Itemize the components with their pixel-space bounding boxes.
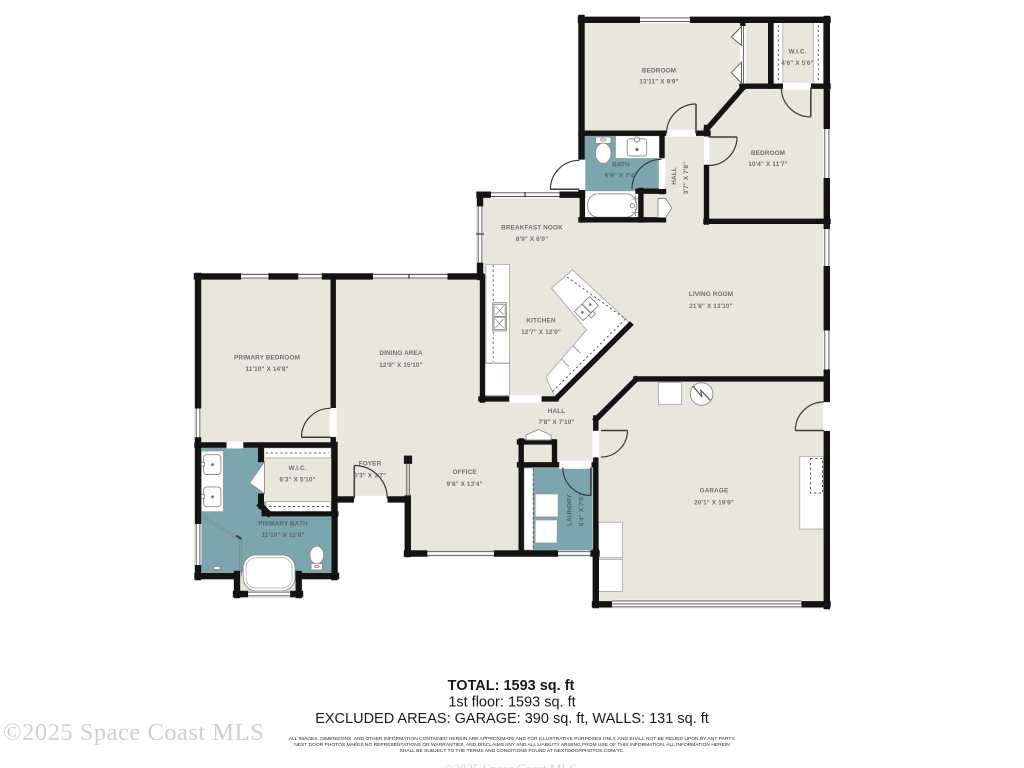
svg-text:11'10" X 14'8": 11'10" X 14'8": [245, 366, 288, 373]
svg-text:BATH: BATH: [612, 162, 630, 169]
svg-text:8'9" X 6'0": 8'9" X 6'0": [516, 236, 548, 243]
svg-text:EXCLUDED AREAS: GARAGE: 390 sq: EXCLUDED AREAS: GARAGE: 390 sq. ft, WALL…: [315, 711, 709, 727]
svg-text:DINING AREA: DINING AREA: [379, 350, 423, 357]
svg-text:BREAKFAST NOOK: BREAKFAST NOOK: [501, 225, 563, 232]
svg-text:6'3" X 5'10": 6'3" X 5'10": [280, 477, 316, 484]
svg-text:W.I.C.: W.I.C.: [788, 49, 806, 56]
svg-text:HALL: HALL: [548, 408, 566, 415]
svg-text:OFFICE: OFFICE: [453, 469, 478, 476]
svg-text:KITCHEN: KITCHEN: [526, 318, 556, 325]
svg-text:13'11" X 9'9": 13'11" X 9'9": [639, 79, 678, 86]
svg-text:TOTAL: 1593 sq. ft: TOTAL: 1593 sq. ft: [448, 678, 575, 694]
svg-text:4'6" X 5'6": 4'6" X 5'6": [781, 60, 813, 67]
svg-text:LAUNDRY: LAUNDRY: [567, 493, 574, 525]
svg-text:HALL: HALL: [671, 167, 678, 185]
svg-text:©2025 Space Coast MLS: ©2025 Space Coast MLS: [443, 761, 576, 768]
svg-text:PRIMARY BATH: PRIMARY BATH: [258, 521, 308, 528]
svg-text:6'9" X 7'4": 6'9" X 7'4": [605, 173, 637, 180]
svg-text:7'8" X 7'10": 7'8" X 7'10": [538, 419, 574, 426]
svg-text:GARAGE: GARAGE: [700, 488, 729, 495]
svg-text:FOYER: FOYER: [359, 461, 382, 468]
svg-text:6'4" X 7'6": 6'4" X 7'6": [579, 494, 586, 526]
svg-text:1st floor: 1593 sq. ft: 1st floor: 1593 sq. ft: [448, 695, 575, 711]
svg-text:ALL IMAGES, DIMENSIONS, AND OT: ALL IMAGES, DIMENSIONS, AND OTHER INFORM…: [289, 736, 736, 742]
svg-text:PRIMARY BEDROOM: PRIMARY BEDROOM: [234, 355, 300, 362]
svg-text:SHALL BE SUBJECT TO THE TERMS: SHALL BE SUBJECT TO THE TERMS AND CONDIT…: [400, 748, 625, 754]
svg-text:9'8" X 13'4": 9'8" X 13'4": [447, 481, 483, 488]
svg-text:NEXT DOOR PHOTOS MAKES NO REPR: NEXT DOOR PHOTOS MAKES NO REPRESENTATION…: [294, 742, 730, 748]
svg-text:3'7" X 7'8": 3'7" X 7'8": [683, 162, 690, 194]
svg-text:10'4" X 11'7": 10'4" X 11'7": [748, 161, 787, 168]
svg-text:12'7" X 12'0": 12'7" X 12'0": [521, 329, 561, 336]
svg-text:12'9" X 15'10": 12'9" X 15'10": [379, 362, 422, 369]
svg-text:11'10" X 12'8": 11'10" X 12'8": [261, 532, 304, 539]
svg-text:LIVING ROOM: LIVING ROOM: [689, 291, 733, 298]
svg-text:BEDROOM: BEDROOM: [642, 68, 676, 75]
svg-text:W.I.C.: W.I.C.: [289, 465, 307, 472]
svg-text:20'1" X 19'9": 20'1" X 19'9": [694, 500, 734, 507]
svg-text:©2025 Space Coast MLS: ©2025 Space Coast MLS: [3, 719, 264, 746]
svg-text:21'8" X 13'10": 21'8" X 13'10": [689, 303, 732, 310]
svg-text:BEDROOM: BEDROOM: [751, 150, 785, 157]
svg-text:6'3" X 3'7": 6'3" X 3'7": [354, 473, 386, 480]
